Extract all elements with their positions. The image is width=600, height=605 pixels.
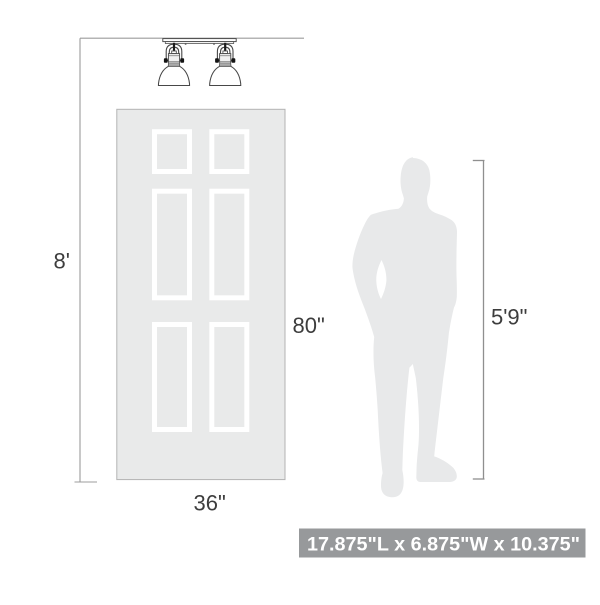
svg-text:5'9": 5'9" — [491, 305, 527, 330]
svg-text:80": 80" — [293, 313, 325, 338]
svg-text:36": 36" — [194, 491, 226, 516]
svg-text:17.875"L x 6.875"W x 10.375": 17.875"L x 6.875"W x 10.375" — [307, 534, 580, 556]
svg-text:8': 8' — [54, 249, 70, 274]
